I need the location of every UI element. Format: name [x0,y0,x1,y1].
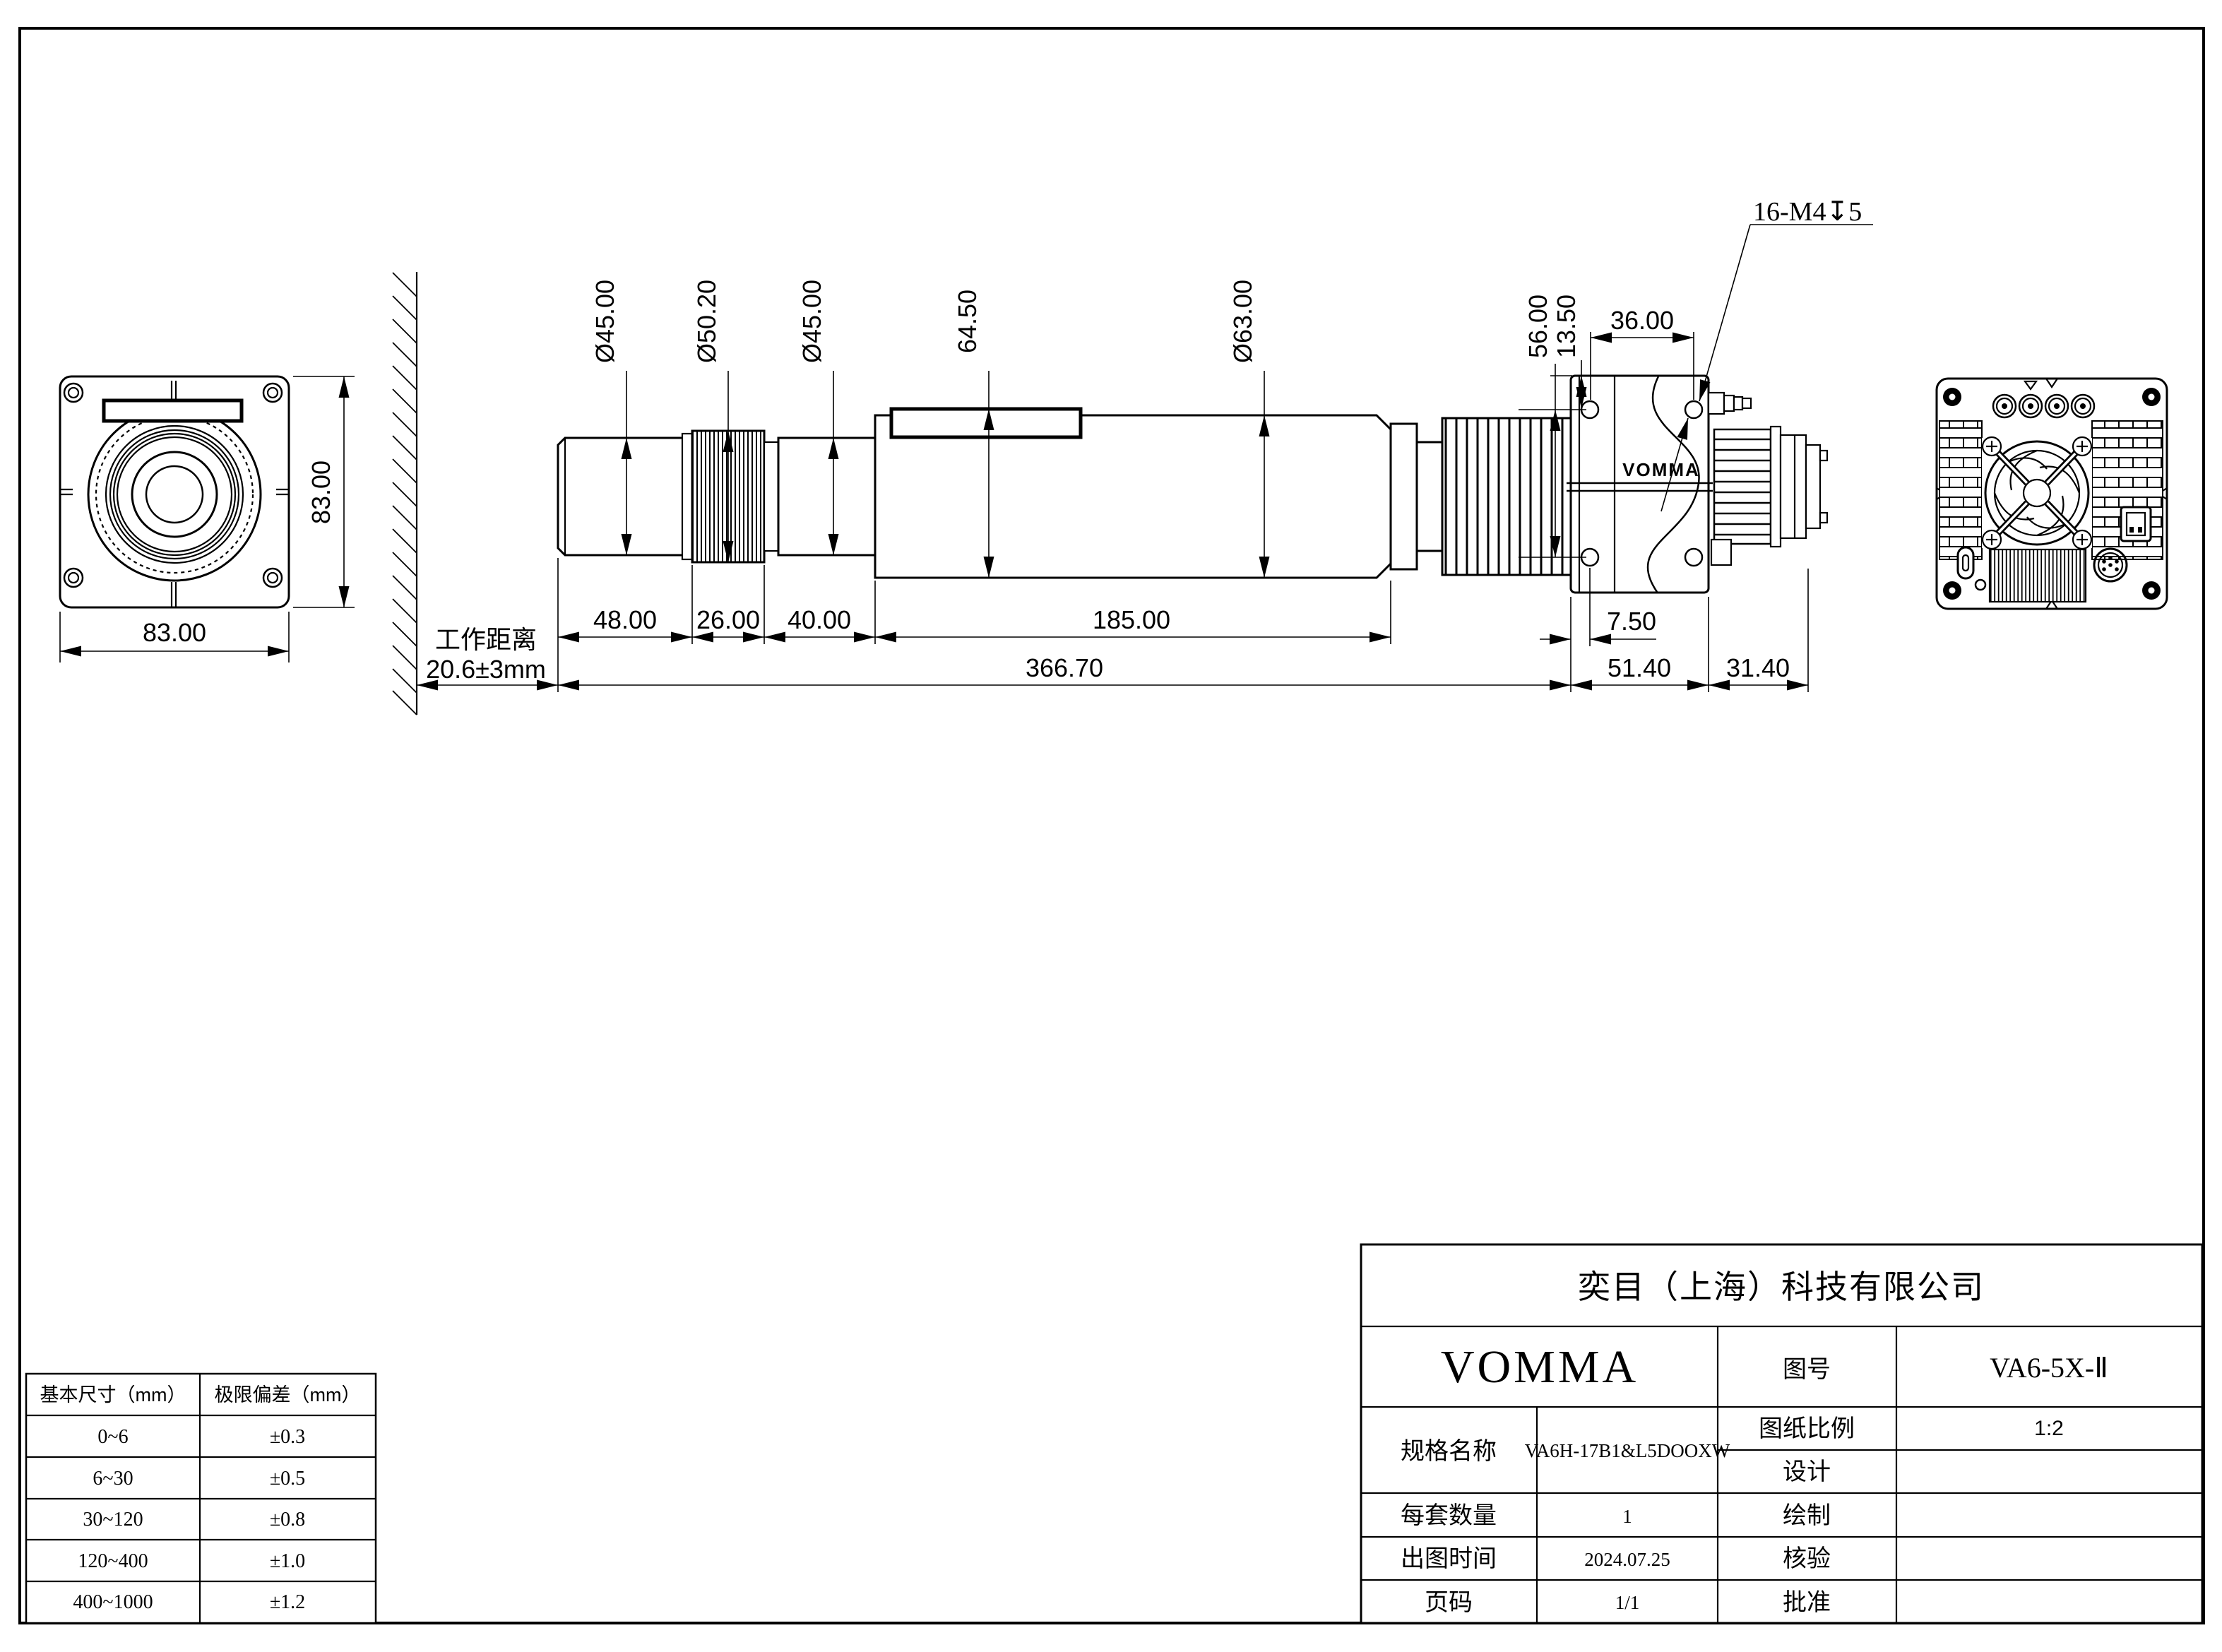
dim-front-height: 83.00 [307,460,335,524]
draft-label: 绘制 [1783,1502,1831,1529]
dim-seg-body: 185.00 [1093,605,1170,634]
bellows-section [1442,418,1571,575]
working-distance-value: 20.6±3mm [426,655,546,684]
step-section-2 [1417,442,1442,551]
qty-label: 每套数量 [1401,1502,1497,1529]
dim-seg-front: 48.00 [593,605,657,634]
drawing-no-label: 图号 [1783,1357,1831,1383]
spec-label: 规格名称 [1401,1438,1497,1465]
dim-rear-length: 31.40 [1726,653,1790,682]
tol-val-0: ±0.3 [270,1426,305,1448]
main-body-barrel [875,415,1391,578]
step-section-1 [1391,424,1417,569]
led-indicator [1976,580,1985,590]
cad-drawing: 83.00 83.00 [0,0,2222,1652]
wall-hatching [393,272,417,715]
dim-seg-mid: 40.00 [788,605,851,634]
drawing-sheet: 83.00 83.00 [0,0,2222,1652]
scale-label: 图纸比例 [1759,1415,1855,1442]
camera-head: VOMMA [1567,376,1713,593]
front-view: 83.00 83.00 [60,376,355,662]
bottom-comb [1990,549,2086,602]
index-triangle-marker [2025,381,2036,389]
usb-c-port [1958,547,1973,578]
cooling-fan [1982,437,2092,549]
rear-heatsink [1711,427,1827,565]
tol-size-3: 120~400 [78,1550,148,1572]
dim-hole-span-h: 36.00 [1610,306,1674,335]
qty-value: 1 [1622,1506,1632,1527]
verify-label: 核验 [1783,1545,1831,1572]
dim-total-length: 366.70 [1026,653,1103,682]
design-label: 设计 [1783,1459,1831,1485]
brand-name: VOMMA [1441,1341,1639,1393]
tol-val-2: ±0.8 [270,1509,305,1531]
tol-size-2: 30~120 [83,1509,143,1531]
side-view: VOMMA [393,197,1873,715]
working-distance-label: 工作距离 [435,625,537,654]
date-label: 出图时间 [1401,1545,1497,1572]
dim-dia-ring: Ø50.20 [692,280,721,363]
lens-collar [682,434,692,559]
dim-dia-mid: Ø45.00 [797,280,826,363]
drawing-no-value: VA6-5X-Ⅱ [1990,1352,2108,1384]
page-value: 1/1 [1615,1592,1640,1613]
company-name: 奕目（上海）科技有限公司 [1578,1269,1985,1305]
step-ring [764,442,778,551]
tol-val-1: ±0.5 [270,1468,305,1490]
tol-header-tol: 极限偏差（mm） [215,1384,361,1406]
tol-size-0: 0~6 [97,1426,128,1448]
lens-mid-section [778,438,875,555]
front-top-bar [104,400,242,421]
dim-hole-top-offset: 13.50 [1552,295,1581,358]
tol-size-4: 400~1000 [73,1591,153,1613]
scale-value: 1:2 [2034,1417,2064,1440]
aviation-connector [2094,549,2127,581]
power-connector [2121,507,2151,541]
tolerance-table: 基本尺寸（mm） 极限偏差（mm） 0~6 ±0.3 6~30 ±0.5 30~… [26,1374,376,1623]
dim-dia-body: Ø63.00 [1228,280,1257,363]
head-logo: VOMMA [1622,459,1700,480]
rear-view [1937,379,2167,609]
head-top-connector [1709,393,1751,414]
dim-body-height: 64.50 [953,290,982,353]
dim-front-width: 83.00 [143,618,206,647]
coax-connectors [1993,381,2094,417]
spec-value: VA6H-17B1&L5DOOXW [1525,1440,1730,1461]
title-block: 奕目（上海）科技有限公司 VOMMA 图号 VA6-5X-Ⅱ 规格名称 VA6H… [1361,1244,2202,1623]
date-value: 2024.07.25 [1584,1549,1670,1570]
tol-val-3: ±1.0 [270,1550,305,1572]
dim-dia-front: Ø45.00 [590,280,619,363]
tol-header-size: 基本尺寸（mm） [40,1384,186,1406]
approve-label: 批准 [1783,1589,1831,1616]
tol-size-1: 6~30 [93,1468,133,1490]
dim-hole-left-offset: 7.50 [1607,607,1656,636]
dim-hole-span-v: 56.00 [1523,295,1552,358]
dim-head-length: 51.40 [1608,653,1671,682]
left-fins [1939,421,1982,559]
page-label: 页码 [1425,1590,1473,1616]
dim-seg-ring: 26.00 [696,605,760,634]
tol-val-4: ±1.2 [270,1591,305,1613]
thread-callout: 16-M4↧5 [1753,197,1862,227]
